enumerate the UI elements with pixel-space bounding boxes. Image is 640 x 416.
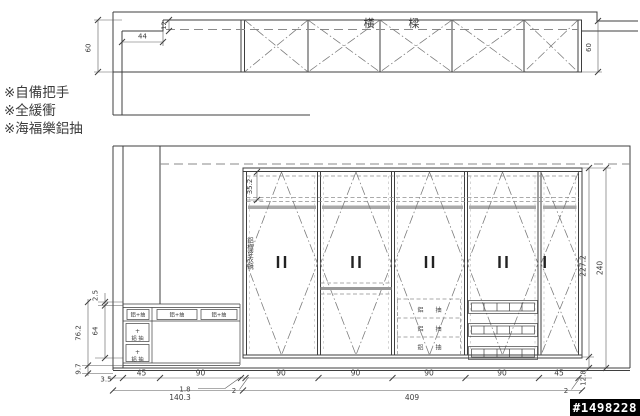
bench-cell-label-1: 鋁+抽	[131, 311, 146, 319]
dim-drawer-col-height: 64	[92, 326, 100, 335]
mirror-label: 鋁框穿衣鏡	[246, 236, 254, 271]
dims-bottom: 45 90 90 90 90 90 45 1.8 2 2 140.3 409	[108, 369, 592, 403]
bench-drawer2-label: 鋁 抽	[131, 355, 143, 363]
dim-total-height: 240	[596, 261, 605, 276]
dim-width-sec1: 90	[276, 369, 286, 378]
dim-beam-step-depth: 12	[160, 21, 168, 29]
dims-left: 2.5 64 76.2 9.7 3.5	[75, 290, 124, 384]
shelf-section2	[321, 283, 392, 294]
dim-width-sec4: 90	[497, 369, 507, 378]
dim-body-height: 227.2	[579, 255, 588, 277]
floor-lines	[113, 368, 630, 371]
note-handles: ※自備把手	[4, 85, 69, 101]
dim-top-shelf-gap-label: 35.2	[246, 179, 254, 195]
dim-width-sec5: 45	[554, 369, 564, 378]
wardrobe-outline	[243, 168, 582, 358]
dim-side-panel-right: 2	[564, 387, 568, 395]
dim-base-height: 9.7	[75, 363, 83, 374]
beam-plan-structure	[113, 12, 638, 115]
dim-width-sec3: 90	[424, 369, 434, 378]
dim-left-total: 140.3	[169, 393, 191, 402]
dim-width-45-left: 45	[137, 369, 147, 378]
dim-width-90-left: 90	[196, 369, 206, 378]
drawer-fronts	[469, 301, 538, 360]
beam-title-char1: 橫	[364, 16, 375, 30]
bench-cell-label-3: 鋁+抽	[212, 311, 227, 319]
frame-top-right	[113, 146, 630, 368]
door-edge-hidden-lines	[250, 176, 576, 352]
note-alu-drawer: ※海福樂鋁抽	[4, 120, 83, 137]
bench-drawer2-sign: +	[135, 349, 140, 356]
bench-cell-label-2: 鋁+抽	[170, 311, 185, 319]
alu-row-label-2: 鋁 抽	[418, 325, 447, 333]
watermark: #1498228	[570, 399, 640, 416]
notes: ※自備把手 ※全緩衝 ※海福樂鋁抽	[4, 85, 83, 137]
dims-right: 227.2 240 12.8	[579, 165, 612, 386]
dim-width-sec2: 90	[351, 369, 361, 378]
beam-title-char2: 樑	[409, 17, 420, 30]
bench-drawer1-sign: +	[135, 328, 140, 335]
dim-cabinet-total: 409	[405, 393, 420, 402]
dim-beam-height-left: 60	[85, 44, 93, 53]
alu-row-label-1: 鋁 抽	[418, 306, 447, 314]
alu-drawer-zone-labels: 鋁 抽 鋁 抽 鋁 抽	[418, 306, 447, 352]
beam-title: 橫 樑	[364, 16, 420, 30]
bench-drawer1-label: 鋁 抽	[131, 334, 143, 342]
dim-beam-height-right: 60	[585, 43, 593, 52]
dim-beam-step-width: 44	[138, 33, 147, 41]
note-softclose: ※全緩衝	[4, 102, 56, 119]
dim-counter-thickness: 2.5	[92, 290, 100, 301]
dim-wall-thickness: 3.5	[100, 376, 111, 384]
cad-drawing: 橫 樑 60 44 12 60 ※自備把手 ※全緩衝 ※海福樂鋁抽	[0, 0, 640, 416]
bench-labels: 鋁+抽 鋁+抽 鋁+抽 + 鋁 抽 + 鋁 抽	[131, 311, 227, 364]
top-shelf-hidden-lines	[247, 176, 579, 202]
hanging-rods	[248, 206, 577, 210]
dim-bench-height: 76.2	[75, 325, 83, 341]
alu-row-label-3: 鋁 抽	[418, 344, 447, 352]
beam-step	[122, 20, 163, 31]
dim-side-panel-left: 2	[232, 387, 236, 395]
elevation-frame	[113, 146, 630, 371]
dim-top-shelf-gap: 35.2	[246, 169, 263, 203]
door-swing-lines	[247, 172, 579, 355]
cad-sheet: 橫 樑 60 44 12 60 ※自備把手 ※全緩衝 ※海福樂鋁抽	[0, 0, 640, 416]
wardrobe-structure	[243, 168, 582, 358]
